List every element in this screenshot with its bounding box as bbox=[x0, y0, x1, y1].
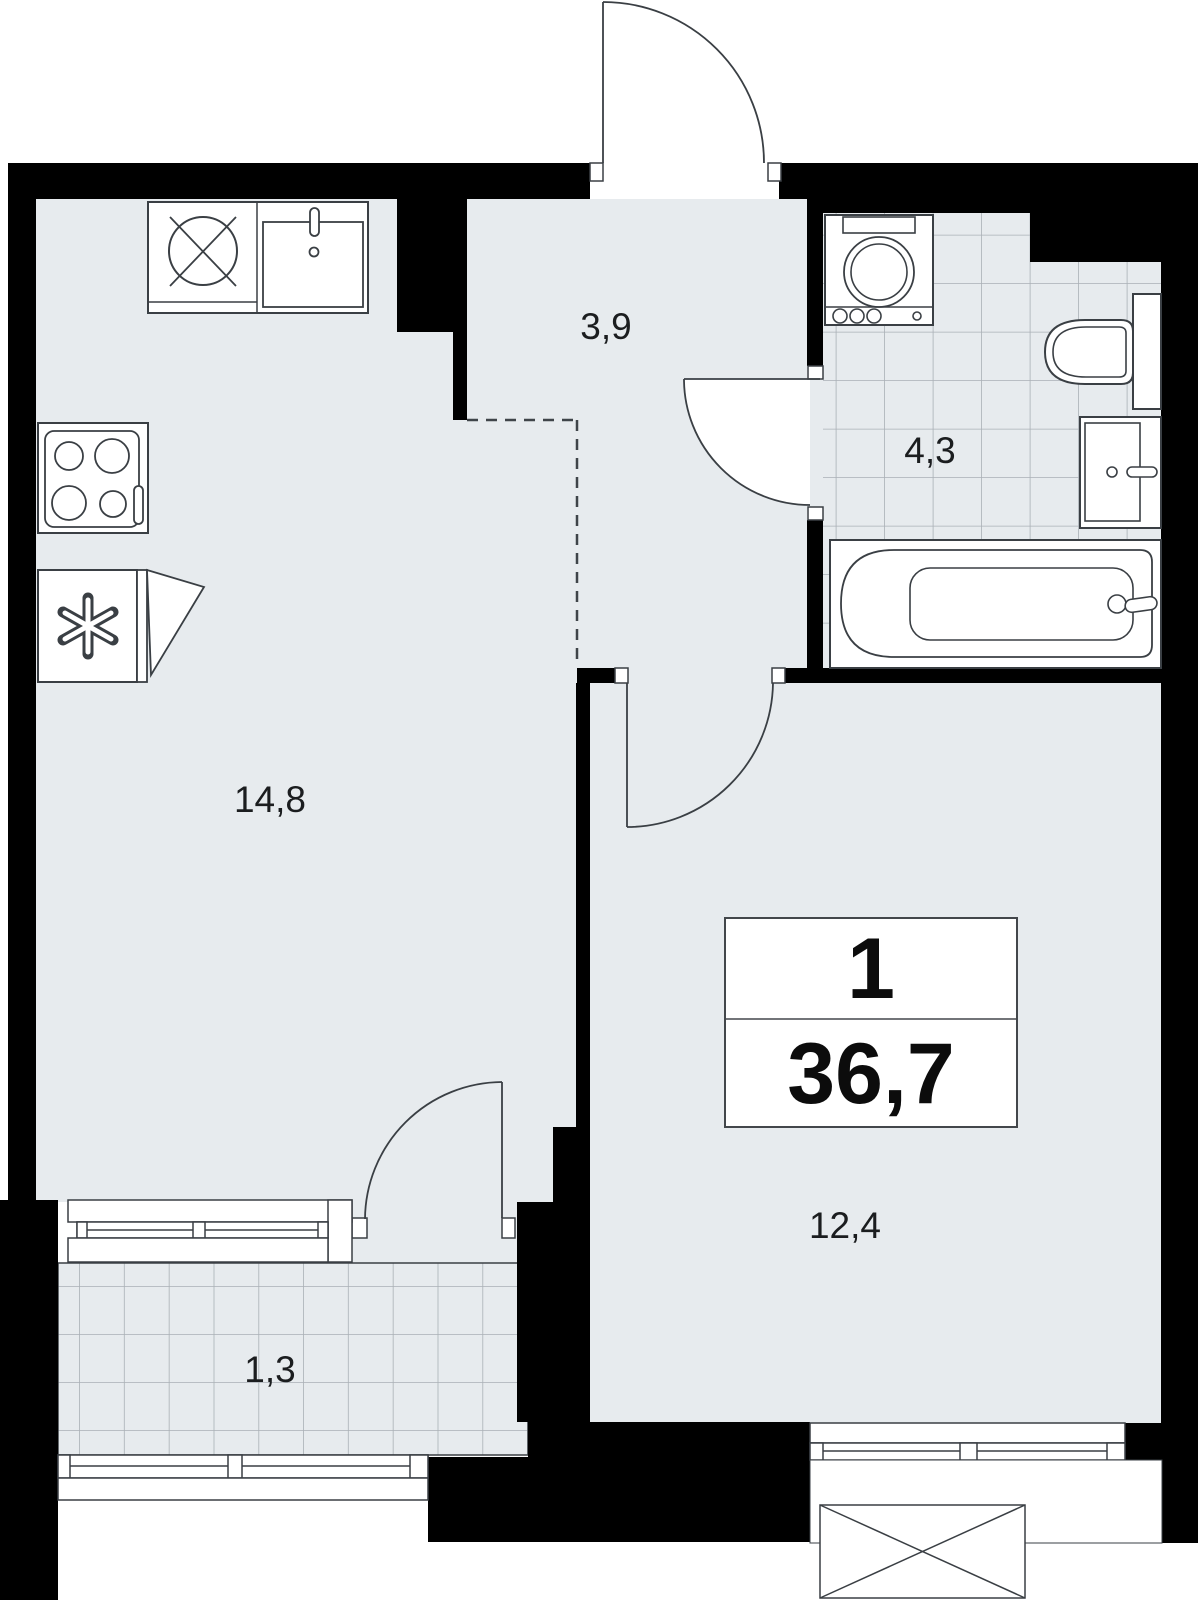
wall-bedroom-bottom bbox=[528, 1422, 810, 1542]
room-label-kitchen-living: 14,8 bbox=[234, 779, 306, 820]
wall-bath-bottom bbox=[807, 668, 1161, 683]
fridge-door-edge bbox=[137, 570, 147, 682]
wall-hall-bedroom-left bbox=[577, 668, 615, 683]
wall-window-right bbox=[1125, 1423, 1161, 1460]
washing-machine-icon bbox=[825, 215, 933, 325]
wall-top-bathroom bbox=[823, 163, 1030, 213]
bedroom-window bbox=[810, 1423, 1162, 1598]
entrance-jamb-right bbox=[768, 163, 781, 181]
kitchen-counter bbox=[148, 202, 368, 313]
wall-hall-bath-upper bbox=[807, 199, 823, 366]
balcony-parapet-post-left bbox=[58, 1455, 70, 1478]
balcony-door-threshold bbox=[352, 1202, 517, 1263]
bedroom-window-sill bbox=[810, 1423, 1125, 1443]
entrance-door-icon bbox=[603, 2, 764, 163]
wall-step-1 bbox=[553, 1127, 590, 1202]
room-label-balcony: 1,3 bbox=[244, 1349, 295, 1390]
bedroom-window-mullion-right bbox=[1107, 1443, 1125, 1460]
bedroom-window-mullion-center bbox=[960, 1443, 977, 1460]
wall-bathroom-step bbox=[1030, 163, 1161, 262]
balcony-jamb-right bbox=[502, 1218, 515, 1238]
bathtub-icon bbox=[830, 540, 1161, 668]
floor-areas bbox=[36, 199, 1161, 1455]
kitchen-counter-unit bbox=[148, 202, 368, 313]
bath-jamb-bottom bbox=[808, 507, 823, 520]
washbasin-icon bbox=[1080, 417, 1161, 528]
wall-column-kitchen bbox=[397, 199, 467, 332]
balcony-parapet-post-center bbox=[228, 1455, 242, 1478]
kitchen-window-outer-sill bbox=[68, 1238, 328, 1262]
total-area-value: 36,7 bbox=[787, 1026, 954, 1122]
wall-top-hall bbox=[779, 163, 823, 199]
wall-stub-kitchen bbox=[453, 332, 467, 420]
entrance-door-arc bbox=[603, 2, 764, 163]
kitchen-window bbox=[68, 1200, 352, 1262]
wall-right bbox=[1161, 163, 1198, 1543]
bath-jamb-top bbox=[808, 366, 823, 379]
balcony-parapet bbox=[58, 1455, 428, 1500]
rooms-count-value: 1 bbox=[847, 921, 895, 1017]
info-box: 1 36,7 bbox=[725, 918, 1017, 1127]
balcony-parapet-ledge bbox=[58, 1478, 428, 1500]
wall-step-2 bbox=[517, 1202, 590, 1238]
bedroom-jamb-right bbox=[772, 668, 785, 683]
kitchen-window-mullion-left bbox=[77, 1222, 87, 1238]
kitchen-window-mullion-right bbox=[318, 1222, 328, 1238]
bedroom-jamb-left bbox=[615, 668, 628, 683]
kitchen-window-right-post bbox=[328, 1200, 352, 1262]
floor-plan-image: 1 36,7 14,8 3,9 4,3 12,4 1,3 bbox=[0, 0, 1200, 1600]
balcony-jamb-left bbox=[352, 1218, 367, 1238]
bathtub-drain bbox=[1108, 595, 1126, 613]
wall-top-left bbox=[8, 163, 590, 199]
entrance-jamb-left bbox=[590, 163, 603, 181]
wall-left-lower bbox=[0, 1200, 58, 1600]
balcony-parapet-post-right bbox=[410, 1455, 428, 1478]
kitchen-window-mullion-center bbox=[193, 1222, 205, 1238]
floor-plan-svg: 1 36,7 14,8 3,9 4,3 12,4 1,3 bbox=[0, 0, 1200, 1600]
wall-hall-bedroom-right bbox=[785, 668, 807, 683]
room-label-bedroom: 12,4 bbox=[809, 1205, 881, 1246]
stove-handle bbox=[134, 486, 143, 524]
kitchen-sink-faucet bbox=[310, 208, 319, 236]
basin-faucet bbox=[1127, 467, 1157, 477]
stove-body bbox=[38, 423, 148, 533]
room-label-bathroom: 4,3 bbox=[904, 430, 955, 471]
living-floor bbox=[36, 683, 576, 1202]
stove-icon bbox=[38, 423, 148, 533]
wall-bottom-center bbox=[428, 1457, 528, 1542]
balcony-box-icon bbox=[820, 1505, 1025, 1598]
bedroom-window-mullion-left bbox=[810, 1443, 823, 1460]
room-label-hallway: 3,9 bbox=[580, 306, 631, 347]
toilet-bowl-outer bbox=[1045, 320, 1133, 384]
kitchen-window-sill bbox=[68, 1200, 352, 1222]
wall-balcony-bedroom bbox=[517, 1238, 590, 1422]
wall-hall-bath-lower bbox=[807, 520, 823, 668]
toilet-tank bbox=[1133, 294, 1161, 409]
wall-left-upper bbox=[8, 163, 36, 1200]
